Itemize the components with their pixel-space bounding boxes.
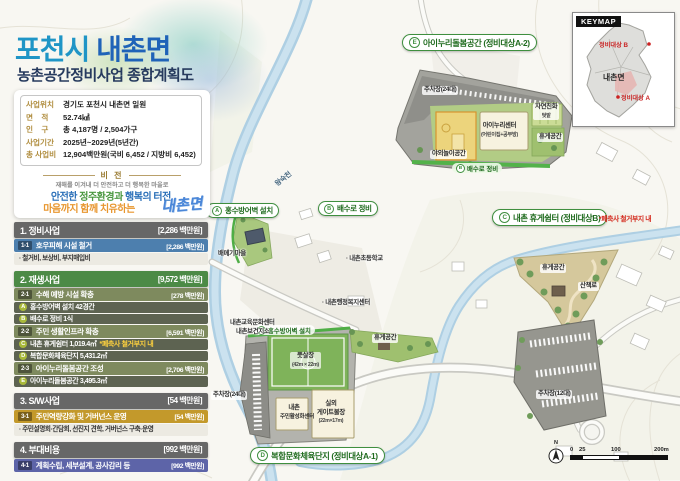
info-row: 면 적52.74㎢ — [26, 112, 196, 125]
school-label: · 내촌초등학교 — [346, 253, 383, 262]
site-a-floodwall — [233, 212, 272, 266]
item-b: B배수로 정비 1식 — [14, 314, 208, 325]
site-d-parking-label: 주차장(24대) — [211, 391, 247, 400]
village-label: 배메기마을 — [218, 248, 246, 257]
info-row: 총 사업비12,904백만원(국비 6,452 / 지방비 6,452) — [26, 149, 196, 162]
sub-1-1: 1-1호우피해 시설 철거[2,286 백만원] — [14, 239, 208, 252]
summary-panel: 사업위치경기도 포천시 내촌면 일원 면 적52.74㎢ 인 구총 4,187명… — [14, 90, 210, 218]
sub-3-1: 3-1주민역량강화 및 거버넌스 운영[54 백만원] — [14, 410, 208, 423]
sub-2-3: 2-3아이누리돌봄공간 조성[2,706 백만원] — [14, 362, 208, 375]
site-d-gateball-label: 실외게이트볼장(22m×17m) — [315, 400, 347, 426]
sub-2-1: 2-1수해 예방 시설 확충[278 백만원] — [14, 288, 208, 301]
letter-e-icon: E — [409, 37, 420, 48]
item-a: A홍수방어벽 설치 42경간 — [14, 302, 208, 313]
item-d: D복합문화체육단지 5,431.2㎡ — [14, 351, 208, 362]
note-1: · 철거비, 보상비, 부지매입비 — [14, 253, 208, 265]
info-row: 인 구총 4,187명 / 2,504가구 — [26, 124, 196, 137]
site-e-garden-label: 자연친화텃밭 — [533, 103, 559, 120]
keymap-region-label: 내촌면 — [603, 72, 625, 83]
note-3: · 주민설명회·간담회, 선진지 견학, 거버넌스 구축·운영 — [14, 424, 208, 436]
section-4-header: 4. 부대비용[992 백만원] — [14, 442, 208, 458]
info-row: 사업기간2025년~2029년(5년간) — [26, 137, 196, 150]
health-center-label: 내촌보건지소 — [236, 326, 269, 335]
section-1-header: 1. 정비사업[2,286 백만원] — [14, 222, 208, 238]
site-d-center-label: 내촌주민활성화센터 — [278, 404, 310, 421]
callout-b: B배수로 정비 — [318, 201, 378, 216]
letter-b-icon: B — [19, 315, 27, 323]
compass-icon — [547, 446, 565, 464]
callout-d: D복합문화체육단지 (정비대상A-1) — [250, 447, 385, 464]
letter-a-icon: A — [212, 206, 222, 216]
edu-center-label: 내촌교육문화센터 — [230, 317, 275, 326]
callout-c: C내촌 휴게쉼터 (정비대상B) — [492, 209, 607, 226]
letter-c-icon: C — [19, 340, 27, 348]
letter-d-icon: D — [257, 450, 268, 461]
site-d-rest-label: 휴게공간 — [372, 334, 398, 343]
item-c: C내촌 휴게쉼터 1,019.4㎡*폐축사 철거부지 내 — [14, 339, 208, 350]
section-2-header: 2. 재생사업[9,572 백만원] — [14, 271, 208, 287]
north-arrow: N — [547, 441, 565, 469]
keymap-title: KEYMAP — [576, 16, 621, 27]
callout-e: E아이누리돌봄공간 (정비대상A-2) — [402, 34, 537, 51]
program-list: 1. 정비사업[2,286 백만원] 1-1호우피해 시설 철거[2,286 백… — [14, 222, 208, 472]
site-e-center-label: 아이누리센터(어린이집+공부방) — [479, 122, 520, 139]
section-3-header: 3. S/W사업[54 백만원] — [14, 393, 208, 409]
title-city: 포천시 — [15, 34, 89, 65]
info-row: 사업위치경기도 포천시 내촌면 일원 — [26, 99, 196, 112]
letter-e-icon: E — [19, 377, 27, 385]
letter-d-icon: D — [19, 352, 27, 360]
site-c-trail-label: 산책로 — [578, 282, 599, 291]
item-e: E아이누리돌봄공간 3,495.3㎡ — [14, 376, 208, 387]
site-e-parking-label: 주차장(24대) — [422, 86, 458, 95]
page-title: 포천시 내촌면 — [15, 28, 170, 68]
keymap-shape — [573, 13, 672, 124]
site-d-futsal-label: 풋살장(42m × 22m) — [290, 352, 321, 369]
community-center-label: · 내촌행정복지센터 — [322, 297, 370, 306]
site-e-childcare — [396, 70, 572, 170]
keymap-panel: KEYMAP 정비대상 B 내촌면 정비대상 A — [572, 12, 675, 127]
keymap-target-a-label: 정비대상 A — [621, 93, 650, 102]
title-district: 내촌면 — [96, 34, 170, 65]
vision-line2: 마음까지 함께 치유하는 — [24, 200, 154, 215]
letter-b-icon: B — [324, 204, 334, 214]
site-c-parking-label: 주차장(12대) — [536, 390, 572, 399]
site-c-rest-label: 휴게공간 — [540, 264, 566, 273]
site-e-rest-label: 휴게공간 — [537, 133, 563, 142]
scale-labels: 0 25 100 200m — [570, 447, 666, 455]
scale-bar: 0 25 100 200m — [570, 447, 666, 460]
keymap-target-b-label: 정비대상 B — [599, 40, 628, 49]
naechon-logo: 내촌면 — [160, 192, 203, 217]
letter-a-icon: A — [19, 303, 27, 311]
item-c-warning: *폐축사 철거부지 내 — [100, 339, 154, 349]
callout-a: A홍수방어벽 설치 — [206, 203, 279, 218]
page-subtitle: 농촌공간정비사업 종합계획도 — [17, 64, 194, 85]
site-e-drain-label: B배수로 정비 — [452, 163, 502, 173]
sub-4-1: 4-1계획수립, 세부설계, 공사감리 등[992 백만원] — [14, 459, 208, 472]
sub-2-2: 2-2주민 생활인프라 확충[6,591 백만원] — [14, 325, 208, 338]
callout-c-warning: *폐축사 철거부지 내 — [599, 213, 651, 223]
letter-c-icon: C — [499, 212, 510, 223]
scale-bar-segments — [570, 455, 668, 460]
project-info-table: 사업위치경기도 포천시 내촌면 일원 면 적52.74㎢ 인 구총 4,187명… — [20, 95, 202, 166]
plan-poster: 포천시 내촌면 농촌공간정비사업 종합계획도 사업위치경기도 포천시 내촌면 일… — [0, 0, 680, 481]
site-e-play-label: 야외놀이공간 — [430, 150, 467, 159]
letter-b-icon: B — [456, 164, 465, 173]
